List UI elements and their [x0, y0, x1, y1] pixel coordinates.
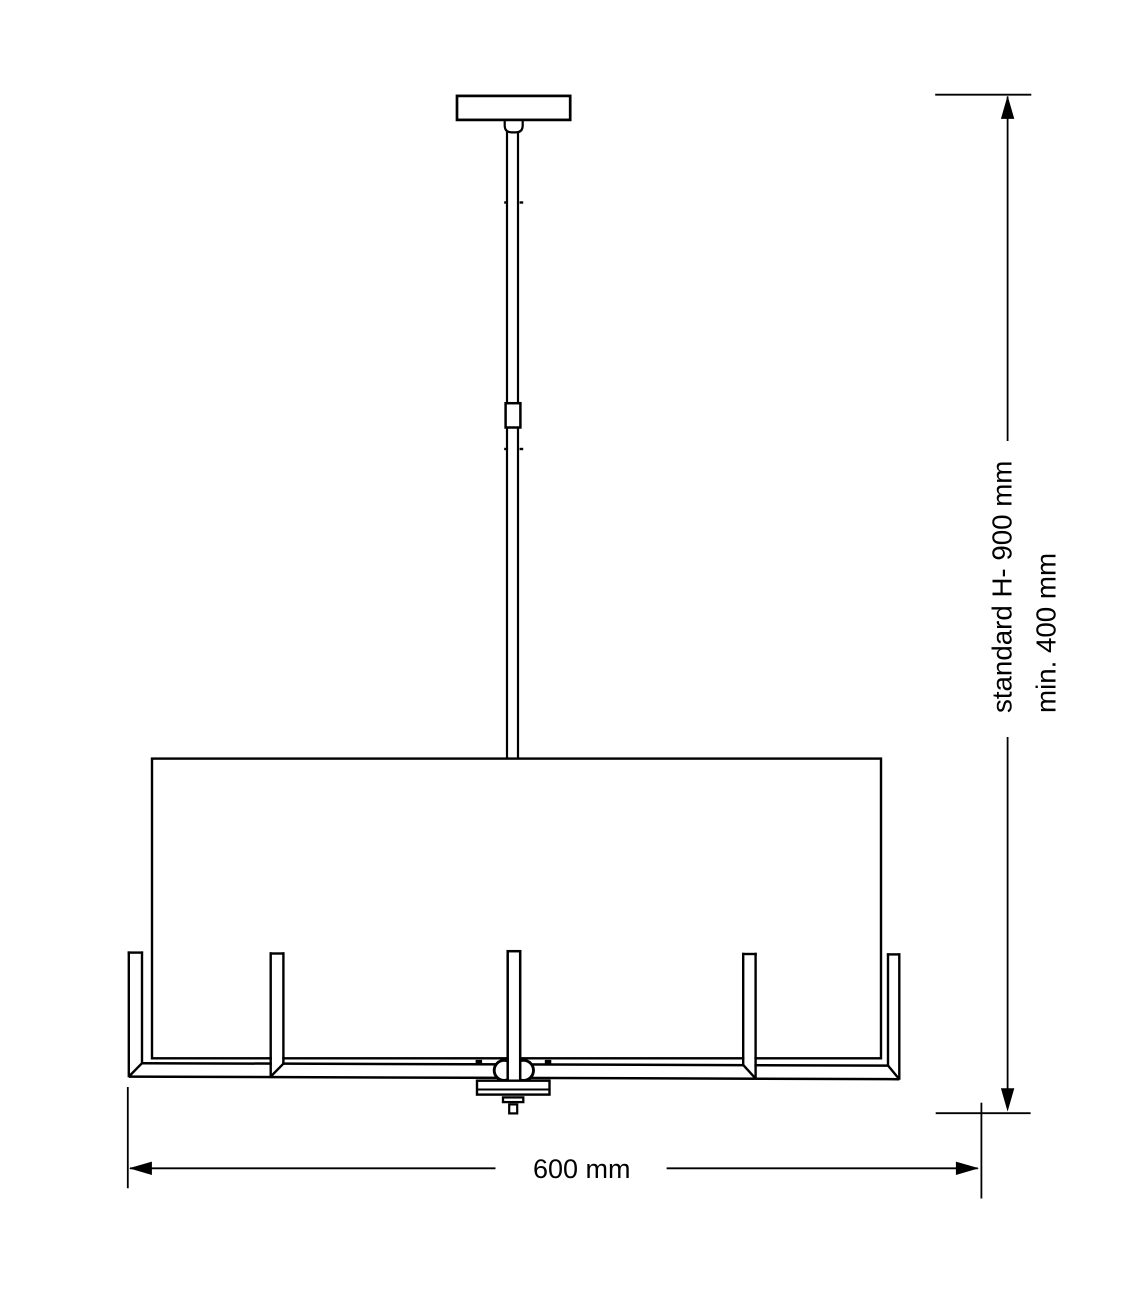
svg-text:min. 400 mm: min. 400 mm [1031, 553, 1062, 713]
svg-text:standard H- 900 mm: standard H- 900 mm [987, 461, 1018, 713]
svg-text:600 mm: 600 mm [533, 1154, 631, 1184]
